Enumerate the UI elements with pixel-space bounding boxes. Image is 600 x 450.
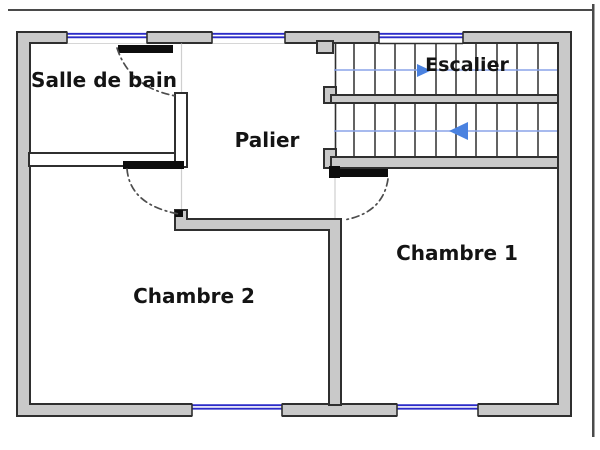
window-top-stairs [379,31,463,44]
window-top-bathroom [67,31,147,44]
stair-south-wall [331,157,558,168]
door-leaf-chambre-2 [123,161,184,169]
window-bottom-chambre2 [192,403,282,418]
door-jamb-chambre-1 [329,166,340,178]
door-leaf-chambre-1 [340,169,388,177]
stair-mid-wall [331,95,558,103]
window-top-palier [212,31,285,44]
floor-plan: Salle de bain Escalier Palier Chambre 1 … [0,0,600,450]
door-leaf-salle-de-bain [118,45,173,53]
frame-top-border [8,9,594,11]
window-bottom-chambre1 [397,403,478,418]
bathroom-east-wall [175,93,187,167]
frame-right-border [592,4,595,437]
floor-plan-drawing [0,0,600,450]
stair-entrance-pier [317,41,333,53]
